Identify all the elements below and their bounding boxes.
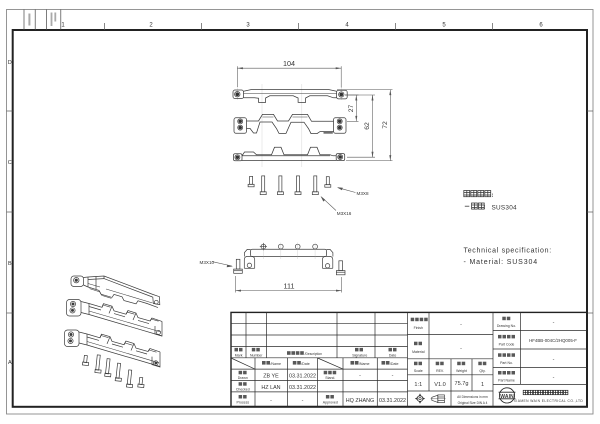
- svg-text:Part No.: Part No.: [500, 361, 513, 365]
- svg-text:03.31.2022: 03.31.2022: [379, 398, 406, 404]
- svg-text:Approved: Approved: [323, 400, 338, 404]
- svg-text:-: -: [553, 375, 555, 381]
- svg-text:- Material: SUS304: - Material: SUS304: [464, 259, 538, 266]
- svg-text:111: 111: [284, 281, 295, 290]
- svg-text:HF4BB-004C/2HQ005-F: HF4BB-004C/2HQ005-F: [529, 338, 577, 343]
- svg-text:Mark: Mark: [235, 354, 243, 358]
- svg-text:All Dimensions in mm: All Dimensions in mm: [457, 395, 488, 399]
- svg-text:B: B: [8, 261, 12, 267]
- svg-text:Drawn: Drawn: [238, 376, 248, 380]
- svg-text:Process: Process: [236, 400, 249, 404]
- svg-text:/Date: /Date: [301, 362, 310, 366]
- svg-text:M3X16: M3X16: [337, 211, 352, 216]
- svg-text:-: -: [553, 357, 555, 363]
- svg-text:-: -: [270, 398, 272, 404]
- svg-text:Scale: Scale: [414, 369, 423, 373]
- svg-text:/Name: /Name: [270, 362, 281, 366]
- svg-text:27: 27: [348, 105, 355, 113]
- svg-text:-: -: [553, 320, 555, 326]
- svg-text:-: -: [460, 322, 462, 328]
- svg-text:03.31.2022: 03.31.2022: [289, 385, 316, 391]
- svg-text:Original Size DIN A 4: Original Size DIN A 4: [458, 401, 488, 405]
- svg-text:XIAMEN WAIN ELECTRICAL CO.,LTD: XIAMEN WAIN ELECTRICAL CO.,LTD: [514, 399, 584, 403]
- svg-text:75.7g: 75.7g: [455, 381, 469, 387]
- svg-text:C: C: [8, 160, 12, 166]
- svg-text:M3X10: M3X10: [200, 260, 215, 265]
- svg-text:-: -: [302, 398, 304, 404]
- svg-text:M3X8: M3X8: [357, 191, 369, 196]
- svg-text:D: D: [8, 60, 12, 66]
- svg-text:104: 104: [283, 59, 295, 68]
- svg-text:Part Code: Part Code: [499, 343, 515, 347]
- svg-text:-: -: [392, 373, 394, 379]
- svg-text:Weight: Weight: [456, 369, 467, 373]
- svg-text:Number: Number: [250, 354, 263, 358]
- svg-text:ZB YE: ZB YE: [263, 374, 279, 380]
- svg-text:SUS304: SUS304: [492, 205, 517, 212]
- svg-text:A: A: [8, 360, 12, 366]
- svg-text:03.31.2022: 03.31.2022: [289, 374, 316, 380]
- svg-text:62: 62: [364, 122, 371, 130]
- svg-text:/Description: /Description: [305, 352, 323, 356]
- svg-text:-: -: [460, 346, 462, 352]
- svg-text:1:1: 1:1: [414, 382, 422, 388]
- svg-text:WAIN: WAIN: [500, 394, 514, 400]
- svg-text:HZ LAN: HZ LAN: [261, 385, 280, 391]
- svg-text:-: -: [359, 373, 361, 379]
- svg-text:Technical specification:: Technical specification:: [464, 248, 552, 255]
- svg-text:Drawing No.: Drawing No.: [497, 324, 516, 328]
- svg-text:/Name: /Name: [359, 362, 370, 366]
- svg-text:1: 1: [481, 382, 484, 388]
- svg-text:Checked: Checked: [236, 388, 250, 392]
- svg-text:REV.: REV.: [436, 369, 444, 373]
- svg-text:Part Name: Part Name: [498, 379, 515, 383]
- svg-text:Material: Material: [412, 350, 425, 354]
- svg-text:/Date: /Date: [390, 362, 399, 366]
- svg-text:72: 72: [382, 121, 389, 129]
- svg-text:Stand.: Stand.: [325, 376, 335, 380]
- svg-text:Qty.: Qty.: [479, 369, 485, 373]
- svg-text:V1.0: V1.0: [434, 382, 446, 388]
- svg-text:Date: Date: [389, 354, 396, 358]
- svg-text:HQ ZHANG: HQ ZHANG: [346, 398, 374, 404]
- svg-text:Signature: Signature: [352, 354, 367, 358]
- svg-text:Finish: Finish: [414, 326, 423, 330]
